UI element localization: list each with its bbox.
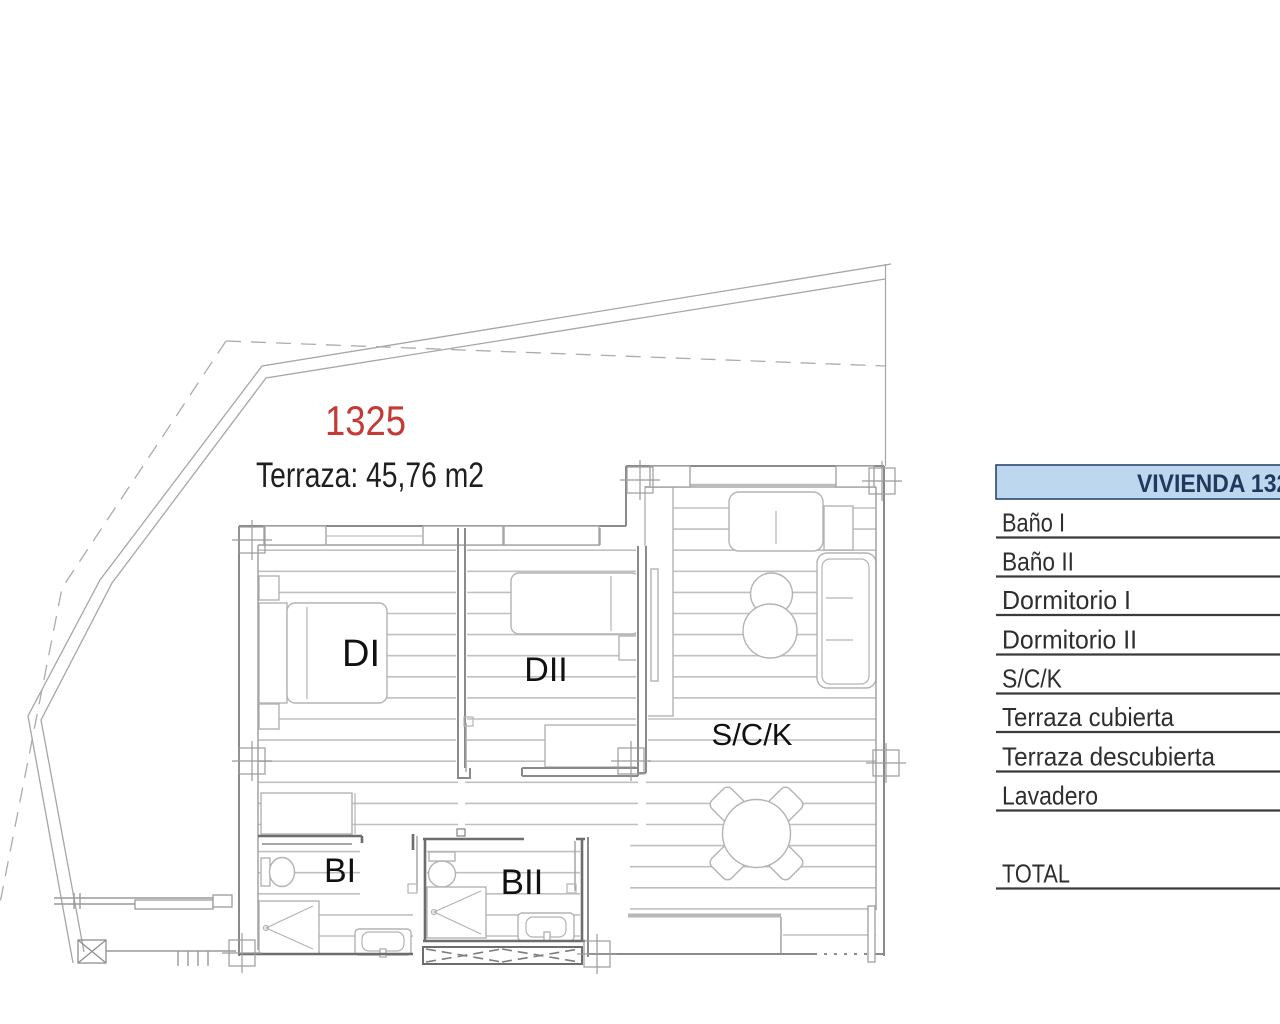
svg-text:Lavadero: Lavadero — [1002, 781, 1098, 811]
svg-text:BII: BII — [501, 863, 544, 902]
svg-text:S/C/K: S/C/K — [712, 717, 793, 752]
svg-text:S/C/K: S/C/K — [1002, 664, 1063, 694]
svg-text:VIVIENDA 1325: VIVIENDA 1325 — [1137, 470, 1280, 498]
svg-text:DII: DII — [524, 651, 567, 689]
svg-text:Terraza descubierta: Terraza descubierta — [1002, 742, 1215, 772]
svg-text:Dormitorio II: Dormitorio II — [1002, 625, 1137, 655]
svg-text:BI: BI — [324, 852, 356, 890]
svg-text:Baño I: Baño I — [1002, 508, 1065, 538]
svg-text:TOTAL: TOTAL — [1002, 859, 1070, 889]
svg-text:Terraza: 45,76 m2: Terraza: 45,76 m2 — [256, 456, 484, 495]
svg-text:Terraza cubierta: Terraza cubierta — [1002, 702, 1174, 732]
svg-text:Dormitorio I: Dormitorio I — [1002, 585, 1131, 615]
svg-text:DI: DI — [342, 633, 380, 675]
svg-text:1325: 1325 — [325, 397, 406, 444]
svg-text:Baño II: Baño II — [1002, 547, 1074, 577]
